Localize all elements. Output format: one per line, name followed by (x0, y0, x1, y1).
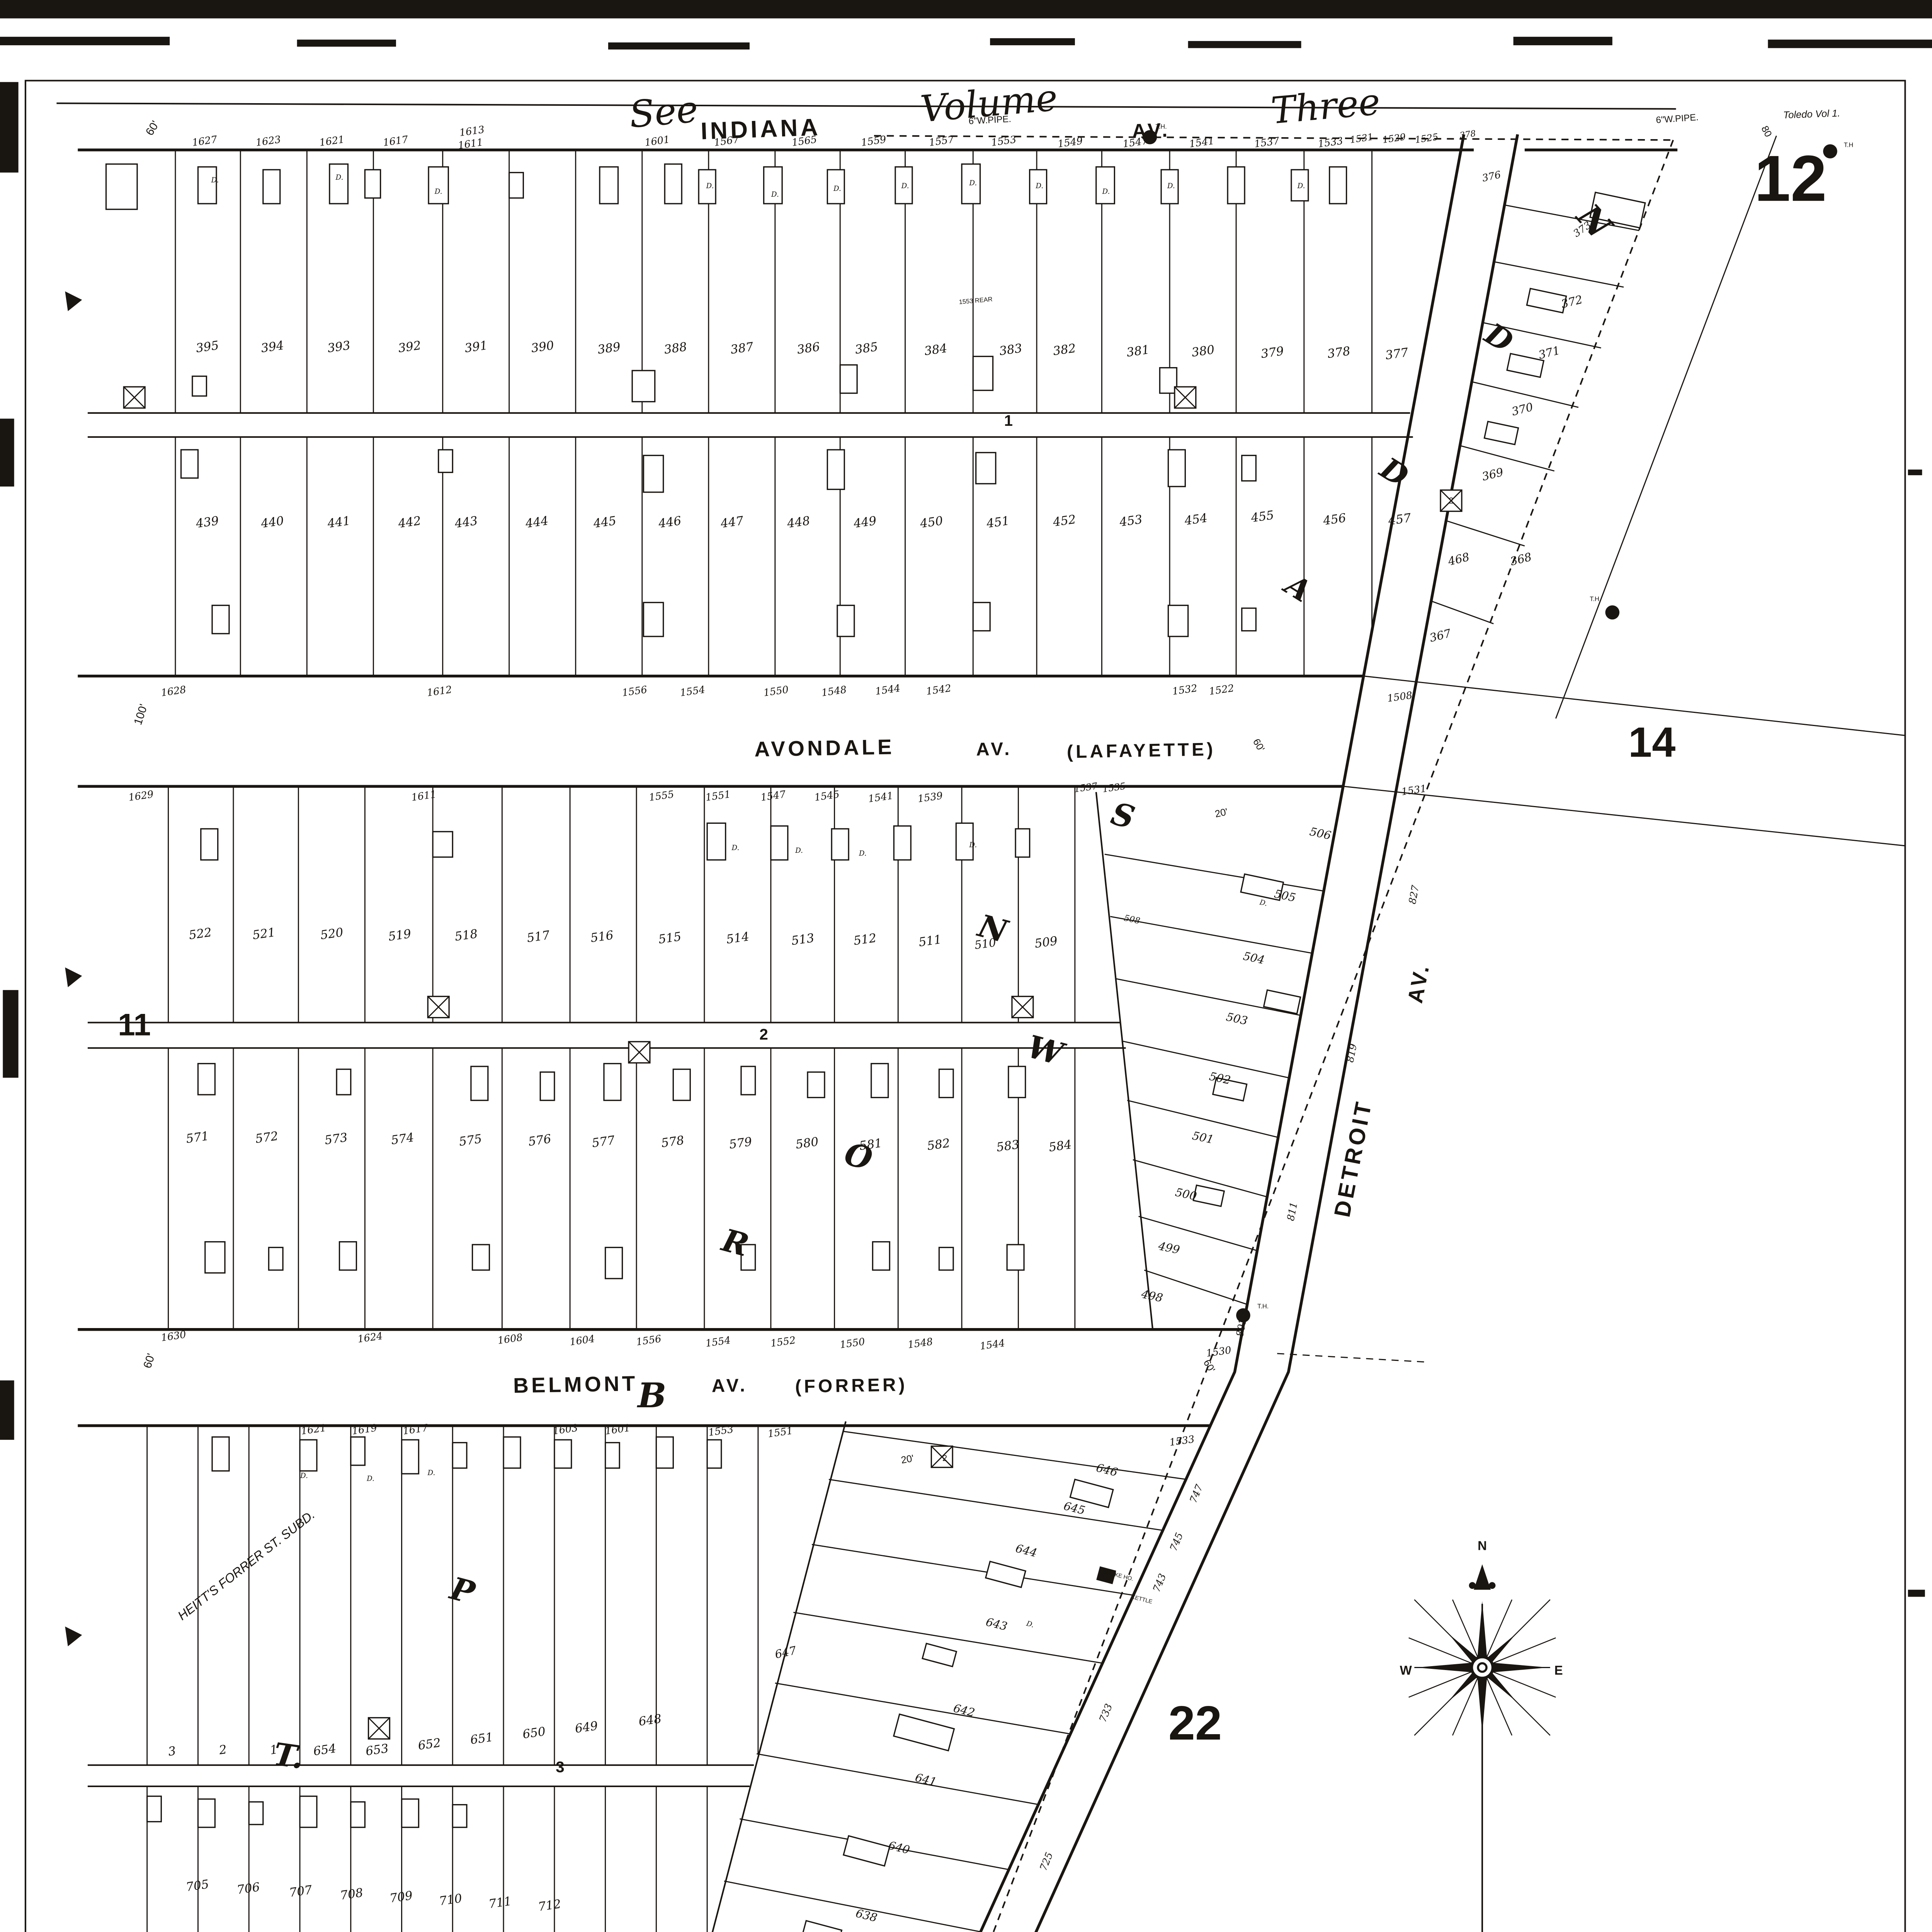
building-footprint (1242, 456, 1256, 481)
building-footprint (600, 167, 618, 204)
dwelling-marker: D. (300, 1472, 308, 1480)
building-footprint (212, 1437, 229, 1471)
dwelling-marker: D. (1035, 182, 1043, 190)
building-footprint (402, 1799, 419, 1827)
building-footprint (707, 823, 726, 860)
building-footprint (973, 356, 993, 390)
annotation: 2 (942, 1453, 947, 1463)
dwelling-marker: D. (1297, 182, 1305, 190)
crossed-shed-icon (1012, 997, 1033, 1018)
building-footprint (540, 1072, 554, 1100)
paper (0, 0, 1932, 1932)
building-footprint (939, 1247, 953, 1270)
building-footprint (1228, 167, 1245, 204)
building-footprint (433, 832, 452, 857)
building-footprint (871, 1064, 888, 1098)
building-footprint (554, 1440, 571, 1468)
building-footprint (503, 1437, 520, 1468)
building-footprint (643, 602, 663, 636)
building-footprint (894, 826, 911, 860)
building-footprint (181, 450, 198, 478)
crossed-shed-icon (1175, 387, 1196, 408)
building-footprint (1096, 167, 1115, 204)
annotation: T.H. (1257, 1303, 1269, 1310)
building-footprint (198, 1799, 215, 1827)
building-footprint (939, 1069, 953, 1097)
street-label: AV. (976, 739, 1012, 760)
building-footprint (452, 1443, 467, 1468)
building-footprint (263, 170, 280, 204)
building-footprint (509, 173, 524, 198)
building-footprint (604, 1064, 621, 1100)
dwelling-marker: D. (706, 182, 714, 190)
alley-number: 2 (759, 1026, 768, 1043)
building-footprint (643, 456, 663, 492)
building-footprint (330, 164, 348, 204)
crossed-shed-icon (428, 997, 449, 1018)
building-footprint (192, 376, 207, 396)
building-footprint (973, 602, 990, 631)
building-footprint (1168, 605, 1188, 637)
compass-label: N (1478, 1539, 1487, 1553)
dwelling-marker: D. (969, 841, 977, 849)
building-footprint (605, 1443, 620, 1468)
dwelling-marker: D. (833, 185, 841, 193)
building-footprint (300, 1440, 317, 1471)
block-number: 14 (1628, 719, 1675, 766)
building-footprint (106, 164, 138, 209)
building-footprint (1009, 1066, 1026, 1098)
building-footprint (473, 1245, 490, 1270)
block-number: 22 (1168, 1696, 1222, 1750)
building-footprint (339, 1242, 356, 1270)
building-footprint (205, 1242, 225, 1273)
test-hole-dot-icon (1605, 605, 1619, 620)
sanborn-map-sheet: 12 (0, 0, 1932, 1932)
compass-label: E (1554, 1663, 1563, 1677)
building-footprint (337, 1069, 351, 1095)
building-footprint (365, 170, 380, 198)
building-footprint (665, 164, 682, 204)
compass-label: W (1400, 1663, 1412, 1677)
street-label: AVONDALE (754, 735, 895, 761)
building-footprint (632, 371, 655, 402)
building-footprint (471, 1066, 488, 1100)
building-footprint (741, 1066, 755, 1095)
volume-note: See (628, 88, 700, 136)
building-footprint (707, 1440, 721, 1468)
crossed-shed-icon (629, 1042, 650, 1063)
building-footprint (201, 829, 218, 860)
crossed-shed-icon (369, 1718, 390, 1739)
annotation: 6"W.PIPE. (968, 114, 1011, 127)
building-footprint (1330, 167, 1347, 204)
building-footprint (1015, 829, 1030, 857)
annotation: T.H. (1155, 123, 1167, 130)
building-footprint (198, 1064, 215, 1095)
dwelling-marker: D. (434, 187, 442, 196)
dwelling-marker: D. (1259, 898, 1268, 908)
crossed-shed-icon (931, 1446, 952, 1468)
building-footprint (351, 1437, 365, 1465)
subdivision-letter: B (636, 1376, 666, 1415)
building-footprint (351, 1802, 365, 1827)
building-footprint (771, 826, 788, 860)
dwelling-marker: D. (366, 1475, 374, 1483)
annotation: T.H. (1590, 596, 1601, 603)
street-label: (FORRER) (795, 1374, 908, 1397)
building-footprint (840, 365, 857, 393)
annotation: T.H (1844, 142, 1854, 149)
dwelling-marker: D. (969, 179, 977, 187)
building-footprint (827, 450, 844, 489)
dwelling-marker: D. (731, 844, 739, 852)
block-number: 12 (1754, 142, 1827, 215)
building-footprint (656, 1437, 673, 1468)
dwelling-marker: D. (901, 182, 909, 190)
building-footprint (1168, 450, 1185, 486)
building-footprint (439, 450, 453, 473)
building-footprint (212, 605, 229, 634)
building-footprint (872, 1242, 889, 1270)
block-number: 11 (118, 1007, 151, 1042)
building-footprint (429, 167, 448, 204)
dwelling-marker: D. (427, 1469, 435, 1477)
building-footprint (808, 1072, 825, 1098)
dwelling-marker: D. (771, 190, 779, 199)
building-footprint (1242, 608, 1256, 631)
street-label: (LAFAYETTE) (1066, 739, 1216, 762)
building-footprint (198, 167, 216, 204)
annotation: 20' (900, 1453, 915, 1466)
building-footprint (673, 1069, 690, 1100)
building-footprint (837, 605, 854, 637)
alley-number: 1 (1004, 412, 1013, 429)
alley-number: 3 (556, 1758, 564, 1776)
building-footprint (976, 452, 996, 484)
dwelling-marker: D. (335, 173, 344, 182)
dwelling-marker: D. (859, 849, 867, 857)
building-footprint (402, 1440, 419, 1474)
building-footprint (300, 1796, 317, 1828)
building-footprint (1007, 1245, 1024, 1270)
crossed-shed-icon (124, 387, 145, 408)
building-footprint (269, 1247, 283, 1270)
street-label: AV. (711, 1375, 748, 1396)
building-footprint (452, 1805, 467, 1828)
building-footprint (249, 1802, 263, 1825)
building-footprint (605, 1247, 622, 1279)
dwelling-marker: D. (795, 847, 803, 855)
annotation: 2 (1449, 496, 1453, 505)
street-label: BELMONT (513, 1371, 638, 1398)
hand-note: Toledo Vol 1. (1783, 108, 1840, 121)
building-footprint (147, 1796, 162, 1822)
dwelling-marker: D. (1102, 187, 1110, 196)
dwelling-marker: D. (1167, 182, 1175, 190)
building-footprint (832, 829, 849, 860)
dwelling-marker: D. (211, 176, 219, 184)
